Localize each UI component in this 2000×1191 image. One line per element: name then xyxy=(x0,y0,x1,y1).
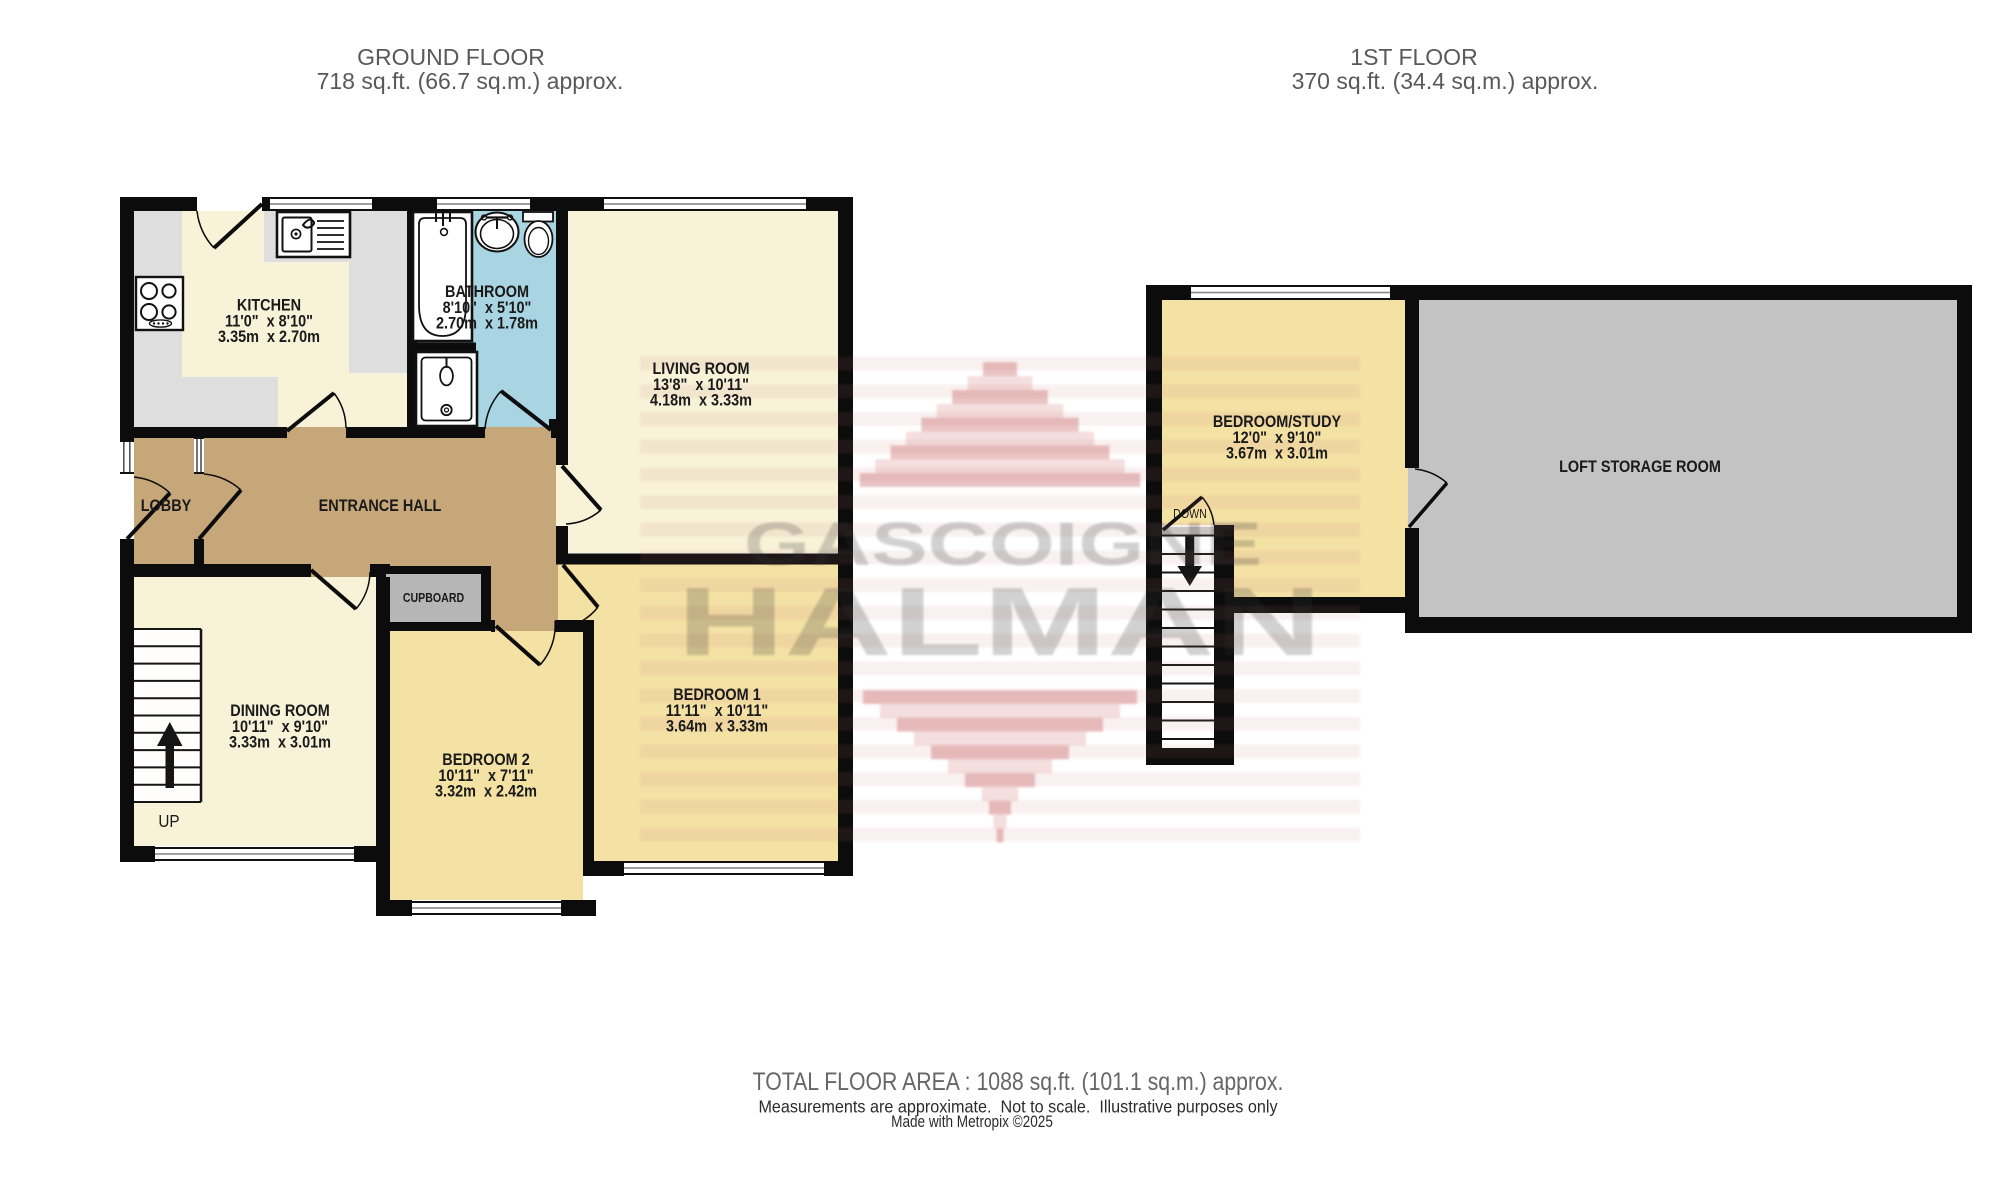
svg-text:TOTAL FLOOR AREA : 1088 sq.ft.: TOTAL FLOOR AREA : 1088 sq.ft. (101.1 sq… xyxy=(753,1067,1284,1095)
svg-text:HALMAN: HALMAN xyxy=(677,567,1322,676)
svg-text:LOBBY: LOBBY xyxy=(141,497,192,515)
svg-text:ENTRANCE HALL: ENTRANCE HALL xyxy=(319,497,442,515)
svg-text:UP: UP xyxy=(158,811,179,831)
svg-text:1ST FLOOR: 1ST FLOOR xyxy=(1350,44,1477,70)
svg-text:3.33m x 3.01m: 3.33m x 3.01m xyxy=(229,734,331,752)
svg-text:Made with Metropix ©2025: Made with Metropix ©2025 xyxy=(891,1113,1053,1132)
svg-text:DOWN: DOWN xyxy=(1173,507,1207,521)
svg-text:CUPBOARD: CUPBOARD xyxy=(403,591,464,605)
svg-text:4.18m x 3.33m: 4.18m x 3.33m xyxy=(650,392,752,410)
svg-text:3.35m x 2.70m: 3.35m x 2.70m xyxy=(218,328,320,346)
svg-text:2.70m x 1.78m: 2.70m x 1.78m xyxy=(436,315,538,333)
svg-text:370 sq.ft. (34.4 sq.m.) approx: 370 sq.ft. (34.4 sq.m.) approx. xyxy=(1292,68,1599,94)
svg-text:3.64m x 3.33m: 3.64m x 3.33m xyxy=(666,718,768,736)
svg-text:GROUND FLOOR: GROUND FLOOR xyxy=(357,44,545,70)
svg-text:3.67m x 3.01m: 3.67m x 3.01m xyxy=(1226,445,1328,463)
svg-text:LOFT STORAGE ROOM: LOFT STORAGE ROOM xyxy=(1559,458,1721,476)
svg-text:718 sq.ft. (66.7 sq.m.) approx: 718 sq.ft. (66.7 sq.m.) approx. xyxy=(317,68,624,94)
svg-text:3.32m x 2.42m: 3.32m x 2.42m xyxy=(435,783,537,801)
